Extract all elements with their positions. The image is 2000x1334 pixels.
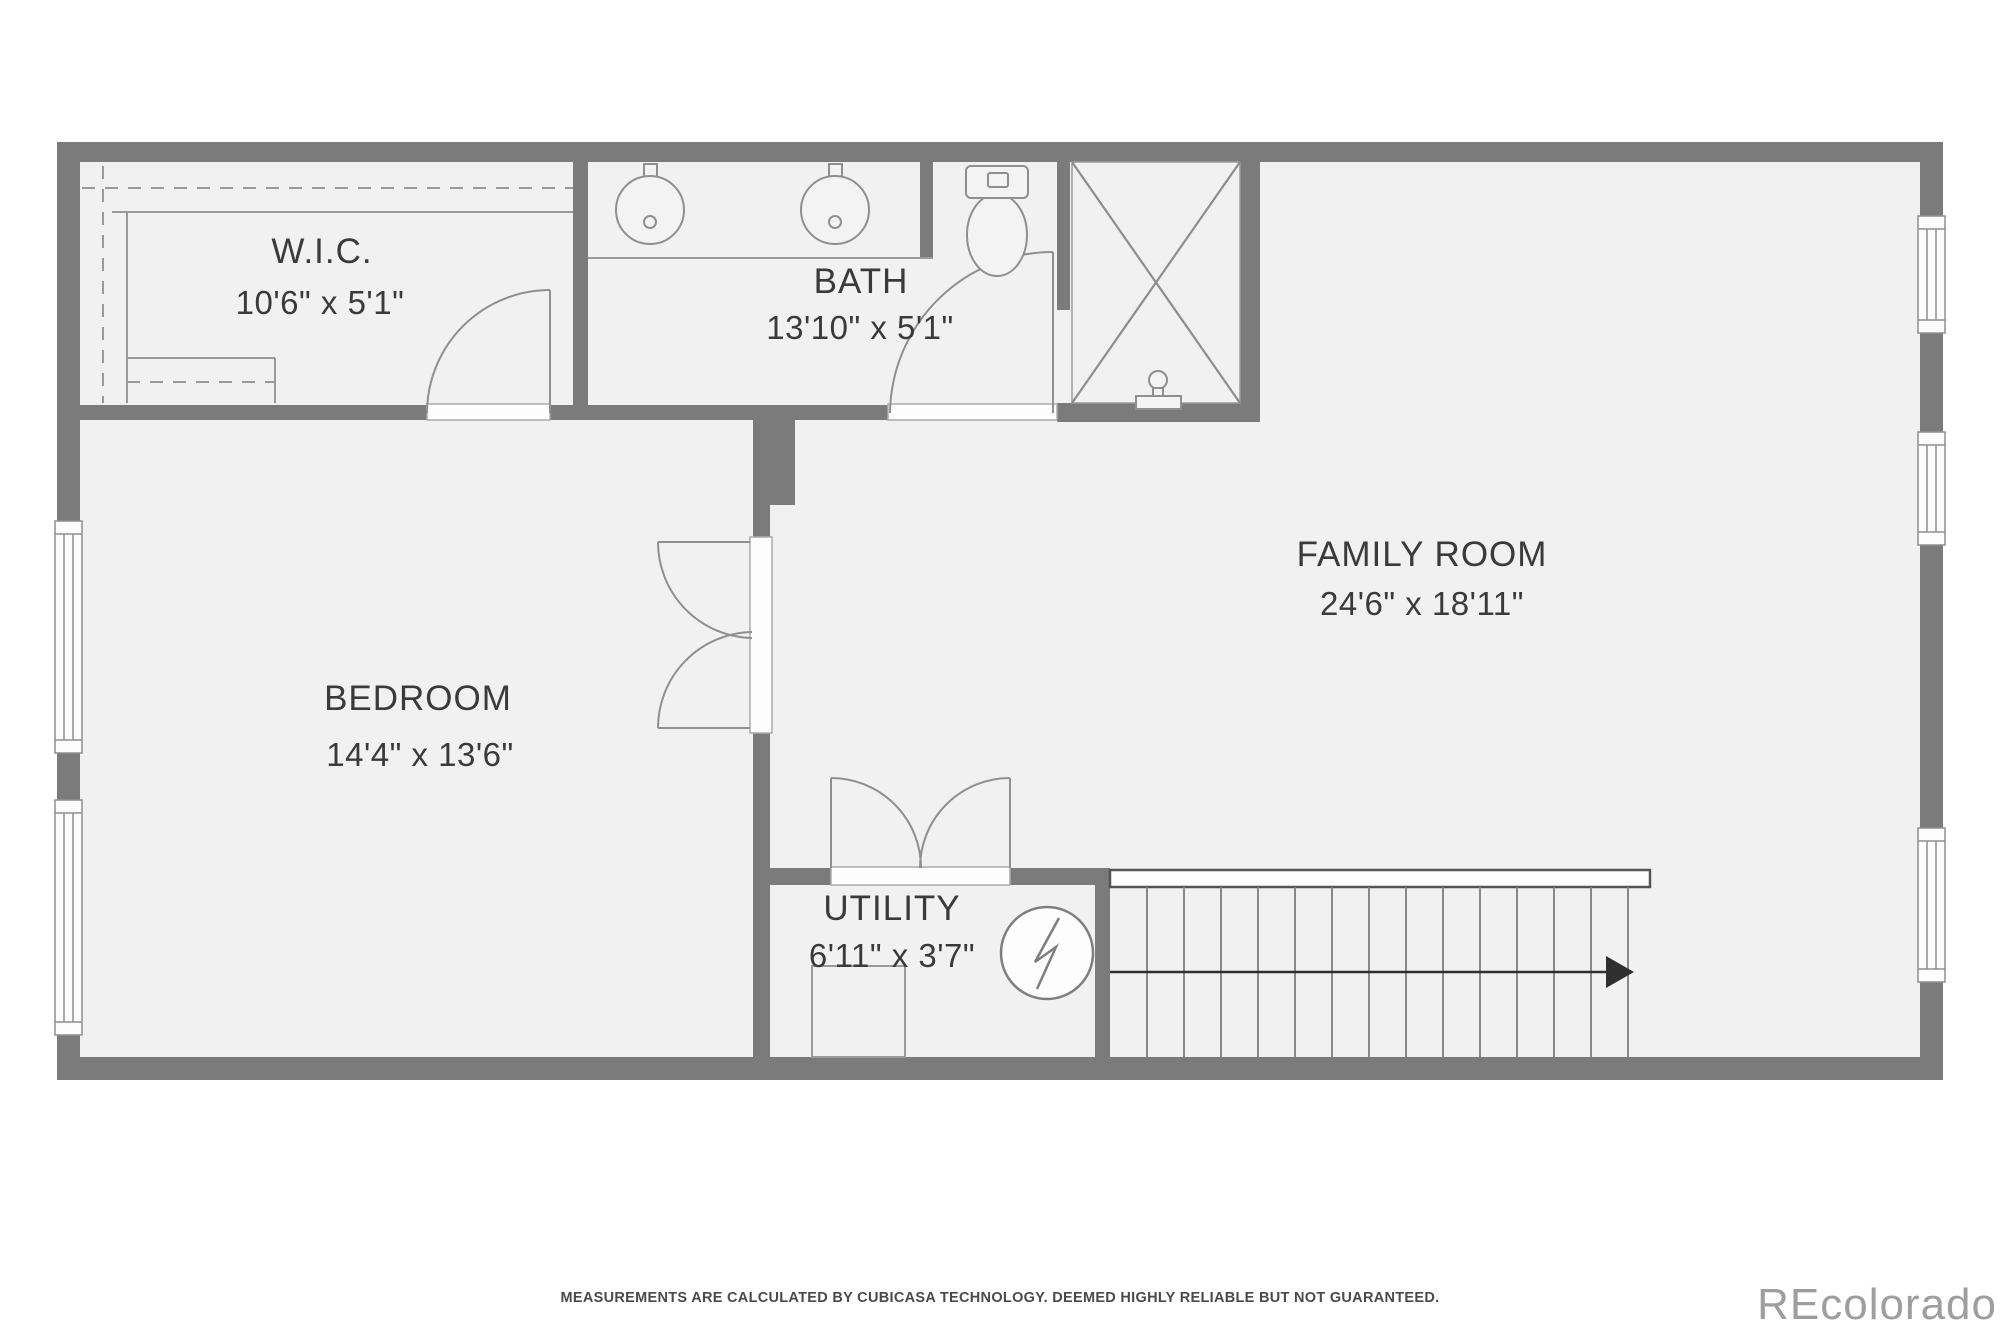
recolorado-watermark: REcolorado	[1757, 1280, 1997, 1329]
wall-wic-bath-divider	[573, 162, 588, 420]
room-label-family-room: FAMILY ROOM	[1297, 535, 1548, 574]
floor-plan-page: W.I.C. 10'6" x 5'1" BATH 13'10" x 5'1" F…	[0, 0, 2000, 1334]
floor-area	[57, 142, 1943, 1080]
wall-utility-stairs-divider	[1095, 885, 1110, 1057]
toilet-icon	[966, 166, 1028, 276]
wall-bedroom-divider-lower	[753, 733, 770, 1057]
floor-plan-drawing: W.I.C. 10'6" x 5'1" BATH 13'10" x 5'1" F…	[0, 0, 2000, 1334]
wall-utility-top-right	[1010, 868, 1110, 885]
window-icon	[1918, 828, 1945, 982]
room-label-bedroom: BEDROOM	[324, 679, 512, 718]
wall-column-block	[770, 420, 795, 505]
shower-icon	[1072, 162, 1240, 409]
room-label-utility: UTILITY	[823, 889, 960, 928]
measurement-disclaimer: MEASUREMENTS ARE CALCULATED BY CUBICASA …	[561, 1290, 1440, 1306]
utility-door-threshold	[831, 867, 1010, 885]
window-icon	[1918, 216, 1945, 333]
wall-wic-bottom-left	[80, 405, 427, 420]
room-dims-bedroom: 14'4" x 13'6"	[326, 736, 513, 773]
wall-bath-bottom	[550, 405, 888, 420]
wall-shower-right	[1240, 162, 1260, 407]
stair-railing	[1110, 870, 1650, 887]
wall-vanity-partition	[920, 162, 933, 258]
wall-bottom	[57, 1057, 1943, 1080]
wic-door-threshold	[427, 404, 550, 420]
wall-shower-left-stub	[1057, 162, 1070, 310]
wall-top	[57, 142, 1943, 162]
wall-utility-top-left	[770, 868, 831, 885]
wall-bedroom-divider-upper	[753, 420, 770, 542]
furnace-icon	[1001, 907, 1093, 999]
room-dims-wic: 10'6" x 5'1"	[236, 284, 405, 321]
window-icon	[1918, 432, 1945, 545]
window-icon	[55, 800, 82, 1035]
bedroom-door-frame	[750, 537, 772, 733]
window-icon	[55, 521, 82, 753]
room-dims-family-room: 24'6" x 18'11"	[1320, 585, 1524, 622]
room-dims-utility: 6'11" x 3'7"	[809, 937, 975, 974]
bath-door-threshold	[888, 404, 1057, 420]
room-dims-bath: 13'10" x 5'1"	[766, 309, 953, 346]
room-label-wic: W.I.C.	[271, 232, 372, 271]
room-label-bath: BATH	[814, 262, 909, 301]
